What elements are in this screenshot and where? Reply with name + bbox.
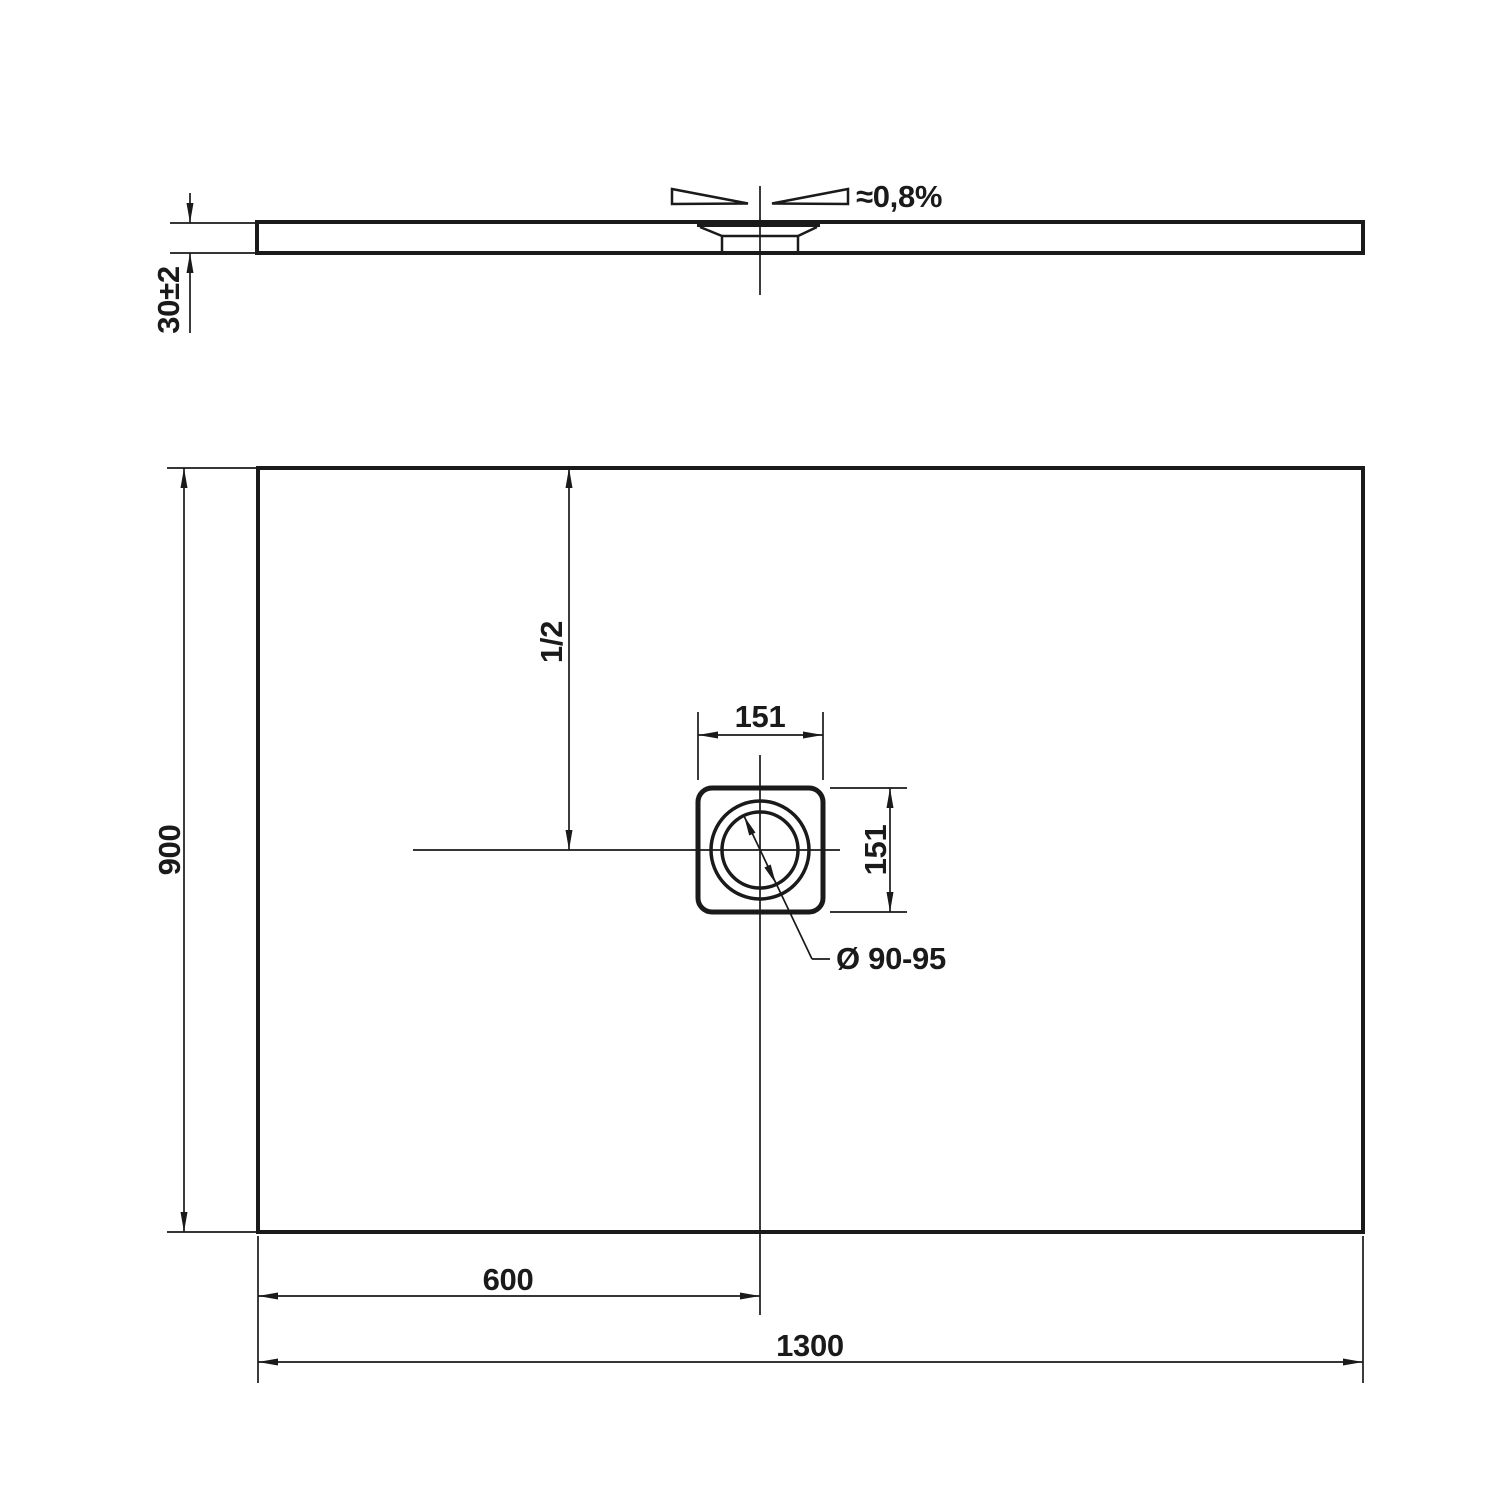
arrowhead [258, 1293, 278, 1300]
plan-height-dim-label: 900 [152, 825, 187, 876]
plan-view: 900 1/2 151 151 [152, 468, 1363, 1383]
arrowhead [764, 865, 776, 885]
width-dimension: 1300 [258, 1236, 1363, 1383]
slope-annotation: ≈0,8% [856, 179, 942, 214]
arrowhead [258, 1359, 278, 1366]
technical-drawing-canvas: ≈0,8% 30±2 [0, 0, 1500, 1500]
slope-wedge-left-icon [672, 189, 748, 204]
plan-width-dim-label: 1300 [776, 1328, 844, 1363]
arrowhead [181, 468, 188, 488]
drain-height-dim-label: 151 [858, 825, 893, 876]
arrowhead [187, 203, 194, 223]
arrowhead [698, 732, 718, 739]
height-dimension: 900 [152, 468, 256, 1232]
arrowhead [566, 468, 573, 488]
drain-diameter-label: Ø 90-95 [836, 941, 946, 976]
arrowhead [887, 892, 894, 912]
drain-width-dim-label: 151 [735, 699, 786, 734]
technical-drawing-page: ≈0,8% 30±2 [0, 0, 1500, 1500]
arrowhead [744, 816, 756, 836]
arrowhead [187, 253, 194, 273]
slope-wedge-right-icon [772, 189, 848, 204]
thickness-dimension: 30±2 [151, 193, 255, 334]
side-view: ≈0,8% 30±2 [151, 179, 1363, 334]
side-view-thickness-dim-label: 30±2 [151, 266, 186, 334]
drain-offset-dimension: 600 [258, 1236, 760, 1383]
side-view-drain-body [700, 227, 817, 251]
arrowhead [181, 1212, 188, 1232]
arrowhead [566, 830, 573, 850]
drain-height-dimension: 151 [830, 788, 907, 912]
half-height-dim-label: 1/2 [534, 621, 569, 663]
arrowhead [887, 788, 894, 808]
arrowhead [1343, 1359, 1363, 1366]
arrowhead [803, 732, 823, 739]
half-height-dimension: 1/2 [534, 468, 573, 850]
drain-offset-dim-label: 600 [483, 1262, 534, 1297]
arrowhead [740, 1293, 760, 1300]
